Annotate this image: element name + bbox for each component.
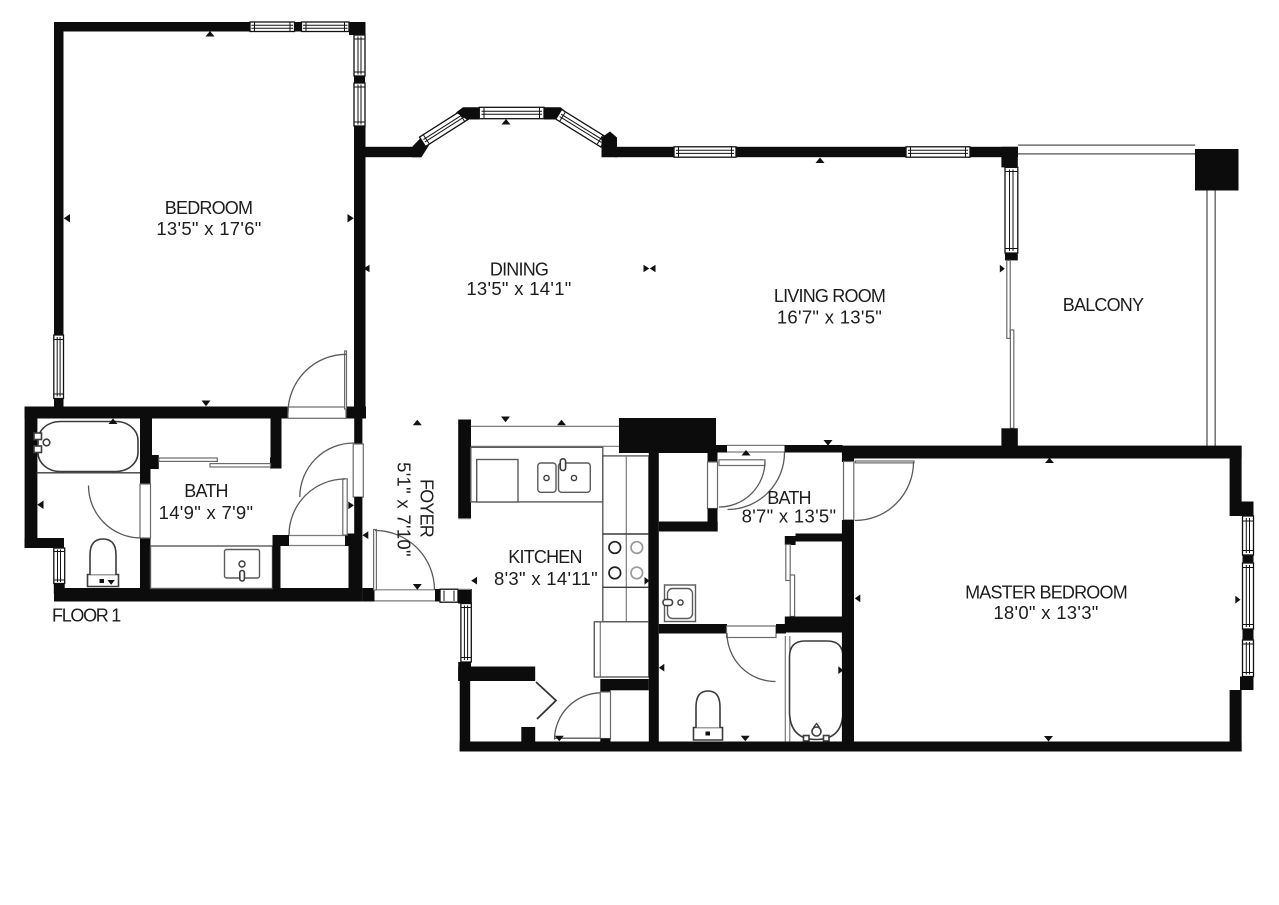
svg-text:8'7" x 13'5": 8'7" x 13'5" xyxy=(742,506,837,527)
svg-text:LIVING ROOM: LIVING ROOM xyxy=(774,286,885,306)
svg-text:KITCHEN: KITCHEN xyxy=(508,547,581,567)
svg-text:BALCONY: BALCONY xyxy=(1063,295,1144,315)
svg-text:FOYER: FOYER xyxy=(417,479,437,538)
svg-text:MASTER BEDROOM: MASTER BEDROOM xyxy=(965,583,1127,603)
svg-text:18'0" x 13'3": 18'0" x 13'3" xyxy=(993,602,1098,623)
svg-text:16'7" x 13'5": 16'7" x 13'5" xyxy=(777,307,882,328)
svg-text:BEDROOM: BEDROOM xyxy=(165,198,252,218)
svg-text:5'1" x 7'10": 5'1" x 7'10" xyxy=(394,462,415,557)
svg-text:FLOOR 1: FLOOR 1 xyxy=(52,606,121,626)
svg-text:DINING: DINING xyxy=(490,260,548,280)
svg-text:8'3" x 14'11": 8'3" x 14'11" xyxy=(494,568,598,589)
svg-text:BATH: BATH xyxy=(184,481,227,501)
svg-text:14'9" x 7'9": 14'9" x 7'9" xyxy=(159,502,254,523)
svg-text:13'5" x 17'6": 13'5" x 17'6" xyxy=(156,218,261,239)
svg-text:13'5" x 14'1": 13'5" x 14'1" xyxy=(466,278,571,299)
